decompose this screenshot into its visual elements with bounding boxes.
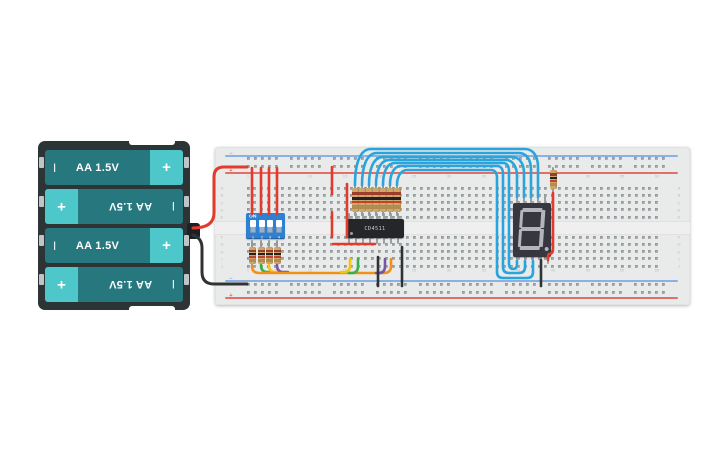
- resistor-band: [258, 250, 265, 253]
- dip-channel-label: 4: [277, 234, 279, 239]
- resistor-band: [359, 192, 366, 196]
- resistor-band: [266, 259, 273, 262]
- ic-pin1-marker-icon: [350, 232, 353, 235]
- battery-contact: [39, 196, 44, 207]
- resistor-band: [373, 197, 380, 200]
- resistor-band: [550, 177, 557, 179]
- dip-slider-4[interactable]: [276, 220, 282, 233]
- resistor-band: [274, 253, 281, 255]
- resistor-band: [387, 201, 394, 203]
- battery-label: AA 1.5V: [78, 267, 183, 302]
- resistor-band: [380, 201, 387, 203]
- dip-knob[interactable]: [250, 220, 256, 227]
- dip-channel-label: 3: [269, 234, 271, 239]
- ic-label: CD4511: [364, 226, 385, 232]
- resistor-body: [359, 188, 366, 212]
- resistor-band: [249, 250, 256, 253]
- battery-case-notch: [129, 306, 175, 313]
- resistor-body: [352, 188, 359, 212]
- resistor-band: [249, 253, 256, 255]
- resistor-band: [387, 192, 394, 196]
- battery-positive-mark: +: [150, 150, 183, 185]
- battery-positive-mark: +: [45, 189, 78, 224]
- battery-case-notch: [129, 138, 175, 145]
- resistor-band: [352, 192, 359, 196]
- battery-positive-mark: +: [150, 228, 183, 263]
- resistor-band: [366, 192, 373, 196]
- resistor-band: [352, 197, 359, 200]
- segment-a: [522, 208, 542, 212]
- resistor-body: [394, 188, 401, 212]
- segment-dp: [544, 247, 548, 251]
- segment-f: [519, 210, 524, 228]
- resistor-band: [359, 197, 366, 200]
- resistor-band: [373, 205, 380, 209]
- segment-series-resistor[interactable]: [394, 184, 401, 216]
- resistor-band: [266, 250, 273, 253]
- segment-series-resistor[interactable]: [359, 184, 366, 216]
- dip-knob[interactable]: [267, 220, 273, 227]
- dip-slider-3[interactable]: [267, 220, 273, 233]
- resistor-band: [352, 205, 359, 209]
- dip-slider-2[interactable]: [259, 220, 265, 233]
- resistor-band: [258, 259, 265, 262]
- resistor-body: [266, 247, 273, 264]
- resistor-band: [366, 197, 373, 200]
- resistor-band: [550, 183, 557, 186]
- battery-cell-1[interactable]: I AA 1.5V +: [45, 150, 183, 185]
- dip-channel-label: 1: [252, 234, 254, 239]
- battery-contact: [184, 235, 189, 246]
- ic-cd4511[interactable]: CD4511: [346, 219, 404, 238]
- resistor-band: [550, 180, 557, 182]
- dip-slider-1[interactable]: [250, 220, 256, 233]
- resistor-band: [394, 201, 401, 203]
- resistor-band: [373, 201, 380, 203]
- resistor-band: [550, 173, 557, 176]
- battery-contact: [39, 157, 44, 168]
- resistor-band: [266, 256, 273, 258]
- dip-channel-label: 2: [260, 234, 262, 239]
- resistor-band: [258, 256, 265, 258]
- resistor-band: [380, 197, 387, 200]
- resistor-body: [366, 188, 373, 212]
- battery-label: AA 1.5V: [45, 150, 150, 185]
- resistor-body: [387, 188, 394, 212]
- resistor-band: [359, 201, 366, 203]
- circuit-canvas: −+−+115510101515202025253030353540404545…: [0, 0, 725, 453]
- battery-contact: [39, 235, 44, 246]
- battery-cell-3[interactable]: I AA 1.5V +: [45, 228, 183, 263]
- segment-e: [517, 229, 522, 247]
- segment-g: [521, 227, 541, 231]
- battery-contact: [39, 274, 44, 285]
- resistor-band: [394, 205, 401, 209]
- resistor-band: [394, 192, 401, 196]
- components-layer: I AA 1.5V + I AA 1.5V + I AA 1.5V + I AA…: [0, 0, 725, 453]
- decimal-point-resistor[interactable]: [550, 167, 557, 193]
- resistor-body: [274, 247, 281, 264]
- battery-contact: [184, 196, 189, 207]
- resistor-band: [366, 205, 373, 209]
- battery-label: AA 1.5V: [78, 189, 183, 224]
- segment-b: [540, 210, 545, 228]
- seven-segment-display[interactable]: [513, 203, 551, 257]
- segment-series-resistor[interactable]: [366, 184, 373, 216]
- dip-switch[interactable]: ON 1234: [246, 213, 285, 239]
- resistor-body: [550, 170, 557, 189]
- battery-pack[interactable]: I AA 1.5V + I AA 1.5V + I AA 1.5V + I AA…: [38, 141, 190, 310]
- resistor-band: [380, 192, 387, 196]
- segment-d: [520, 246, 540, 250]
- segment-series-resistor[interactable]: [373, 184, 380, 216]
- resistor-band: [380, 205, 387, 209]
- resistor-band: [274, 250, 281, 253]
- resistor-band: [274, 259, 281, 262]
- resistor-band: [249, 259, 256, 262]
- resistor-band: [266, 253, 273, 255]
- segment-c: [539, 229, 544, 247]
- resistor-band: [249, 256, 256, 258]
- resistor-band: [258, 253, 265, 255]
- resistor-band: [394, 197, 401, 200]
- dip-knob[interactable]: [276, 220, 282, 227]
- resistor-body: [373, 188, 380, 212]
- segment-series-resistor[interactable]: [380, 184, 387, 216]
- battery-positive-mark: +: [45, 267, 78, 302]
- dip-pulldown-resistor[interactable]: [249, 240, 256, 268]
- battery-contact: [184, 157, 189, 168]
- battery-cell-2[interactable]: I AA 1.5V +: [45, 189, 183, 224]
- resistor-body: [258, 247, 265, 264]
- seven-segment-digit: [511, 203, 553, 257]
- dip-knob[interactable]: [259, 220, 265, 227]
- resistor-body: [249, 247, 256, 264]
- resistor-band: [352, 201, 359, 203]
- battery-cell-4[interactable]: I AA 1.5V +: [45, 267, 183, 302]
- battery-label: AA 1.5V: [45, 228, 150, 263]
- resistor-band: [373, 192, 380, 196]
- battery-contact: [184, 274, 189, 285]
- segment-series-resistor[interactable]: [352, 184, 359, 216]
- resistor-band: [359, 205, 366, 209]
- resistor-band: [274, 256, 281, 258]
- segment-series-resistor[interactable]: [387, 184, 394, 216]
- resistor-body: [380, 188, 387, 212]
- resistor-band: [387, 205, 394, 209]
- resistor-band: [387, 197, 394, 200]
- resistor-band: [366, 201, 373, 203]
